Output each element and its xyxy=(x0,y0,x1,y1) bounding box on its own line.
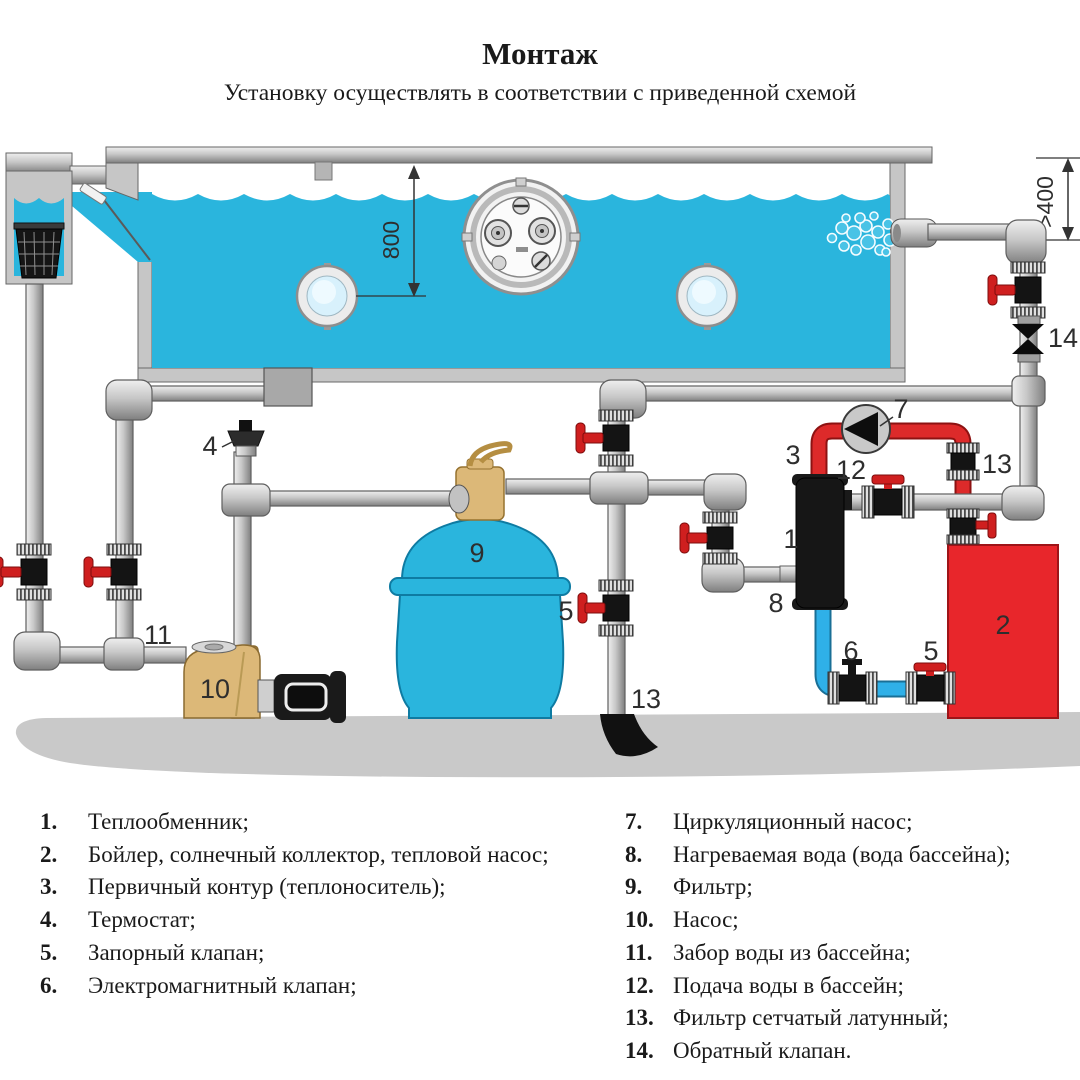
callout-10: 10 xyxy=(200,674,230,704)
callout-7: 7 xyxy=(893,394,908,424)
valve-strainer-line xyxy=(578,580,633,636)
legend: 1.Теплообменник; 2.Бойлер, солнечный кол… xyxy=(40,806,1048,1068)
valve-drain-line xyxy=(84,544,141,600)
callout-5b: 5 xyxy=(923,636,938,666)
legend-item-6: 6.Электромагнитный клапан; xyxy=(40,970,560,1002)
callout-13b: 13 xyxy=(982,449,1012,479)
ground xyxy=(16,712,1080,777)
pool-wall-left xyxy=(138,256,152,382)
legend-right-column: 7.Циркуляционный насос; 8.Нагреваемая во… xyxy=(625,806,1060,1068)
pool xyxy=(6,147,937,382)
legend-item-12: 12.Подача воды в бассейн; xyxy=(625,970,1060,1002)
legend-item-14: 14.Обратный клапан. xyxy=(625,1035,1060,1067)
legend-item-5: 5.Запорный клапан; xyxy=(40,937,560,969)
skimmer-throat-water xyxy=(64,192,152,262)
valve-supply xyxy=(862,475,914,518)
callout-8: 8 xyxy=(768,588,783,618)
callout-14: 14 xyxy=(1048,323,1078,353)
circulation-pump xyxy=(842,405,890,453)
legend-item-13: 13.Фильтр сетчатый латунный; xyxy=(625,1002,1060,1034)
callout-3: 3 xyxy=(785,440,800,470)
callout-12: 12 xyxy=(836,455,866,485)
main-drain-fitting xyxy=(264,368,312,406)
legend-item-10: 10.Насос; xyxy=(625,904,1060,936)
filter-valve-head xyxy=(449,444,510,520)
callout-11: 11 xyxy=(144,620,172,650)
filter-inlet-port xyxy=(449,485,469,513)
callout-2: 2 xyxy=(995,610,1010,640)
legend-item-4: 4.Термостат; xyxy=(40,904,560,936)
legend-item-1: 1.Теплообменник; xyxy=(40,806,560,838)
counterflow-unit xyxy=(462,178,580,294)
manual-page: Монтаж Установку осуществлять в соответс… xyxy=(0,0,1080,1080)
callout-13a: 13 xyxy=(631,684,661,714)
check-valve xyxy=(1012,316,1044,362)
pool-deck xyxy=(106,147,932,163)
callout-1: 1 xyxy=(783,524,798,554)
legend-item-2: 2.Бойлер, солнечный коллектор, тепловой … xyxy=(40,839,560,871)
pool-floor xyxy=(138,368,905,382)
callout-9: 9 xyxy=(469,538,484,568)
valve-boiler-inlet xyxy=(947,509,996,544)
brass-strainer xyxy=(947,443,979,480)
legend-item-8: 8.Нагреваемая вода (вода бассейна); xyxy=(625,839,1060,871)
legend-item-7: 7.Циркуляционный насос; xyxy=(625,806,1060,838)
thermostat xyxy=(228,420,264,456)
legend-item-11: 11.Забор воды из бассейна; xyxy=(625,937,1060,969)
callout-5a: 5 xyxy=(558,596,573,626)
callout-4: 4 xyxy=(202,431,217,461)
legend-item-3: 3.Первичный контур (теплоноситель); xyxy=(40,871,560,903)
legend-left-column: 1.Теплообменник; 2.Бойлер, солнечный кол… xyxy=(40,806,560,1068)
skimmer-basket xyxy=(14,223,64,278)
valve-skimmer-line xyxy=(0,544,51,600)
deck-post xyxy=(315,162,332,180)
legend-item-9: 9.Фильтр; xyxy=(625,871,1060,903)
pool-wall-right xyxy=(890,163,905,382)
callout-6: 6 xyxy=(843,636,858,666)
valve-bypass xyxy=(576,410,633,466)
valve-hx-inlet xyxy=(680,512,737,564)
pump-motor xyxy=(258,671,346,723)
dimension-800-label: 800 xyxy=(378,221,404,259)
valve-return-riser xyxy=(988,262,1045,318)
